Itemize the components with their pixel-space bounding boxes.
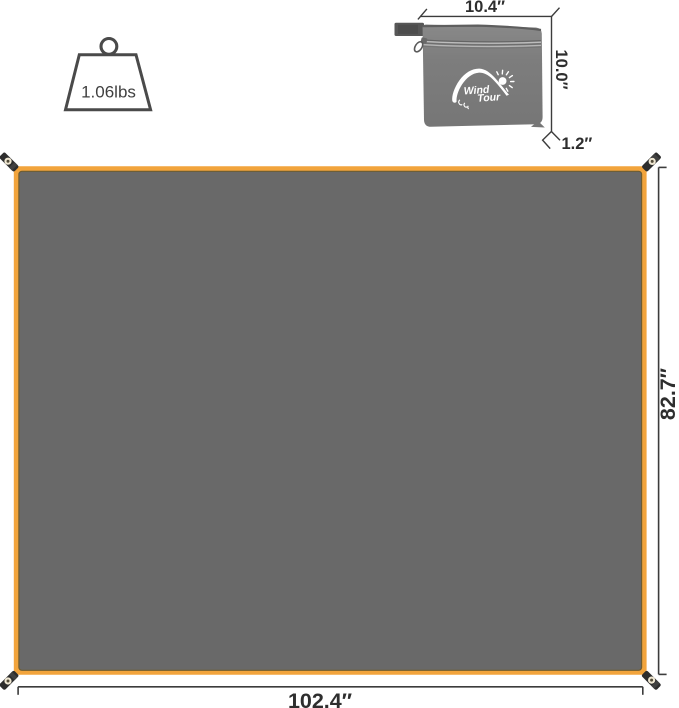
svg-text:1.2″: 1.2″ [562, 135, 593, 153]
svg-text:10.4″: 10.4″ [465, 0, 505, 16]
svg-text:102.4″: 102.4″ [288, 689, 352, 708]
svg-text:10.0″: 10.0″ [552, 49, 570, 89]
svg-text:1.06lbs: 1.06lbs [81, 83, 136, 102]
svg-text:Tour: Tour [477, 91, 502, 105]
svg-text:82.7″: 82.7″ [656, 368, 679, 420]
